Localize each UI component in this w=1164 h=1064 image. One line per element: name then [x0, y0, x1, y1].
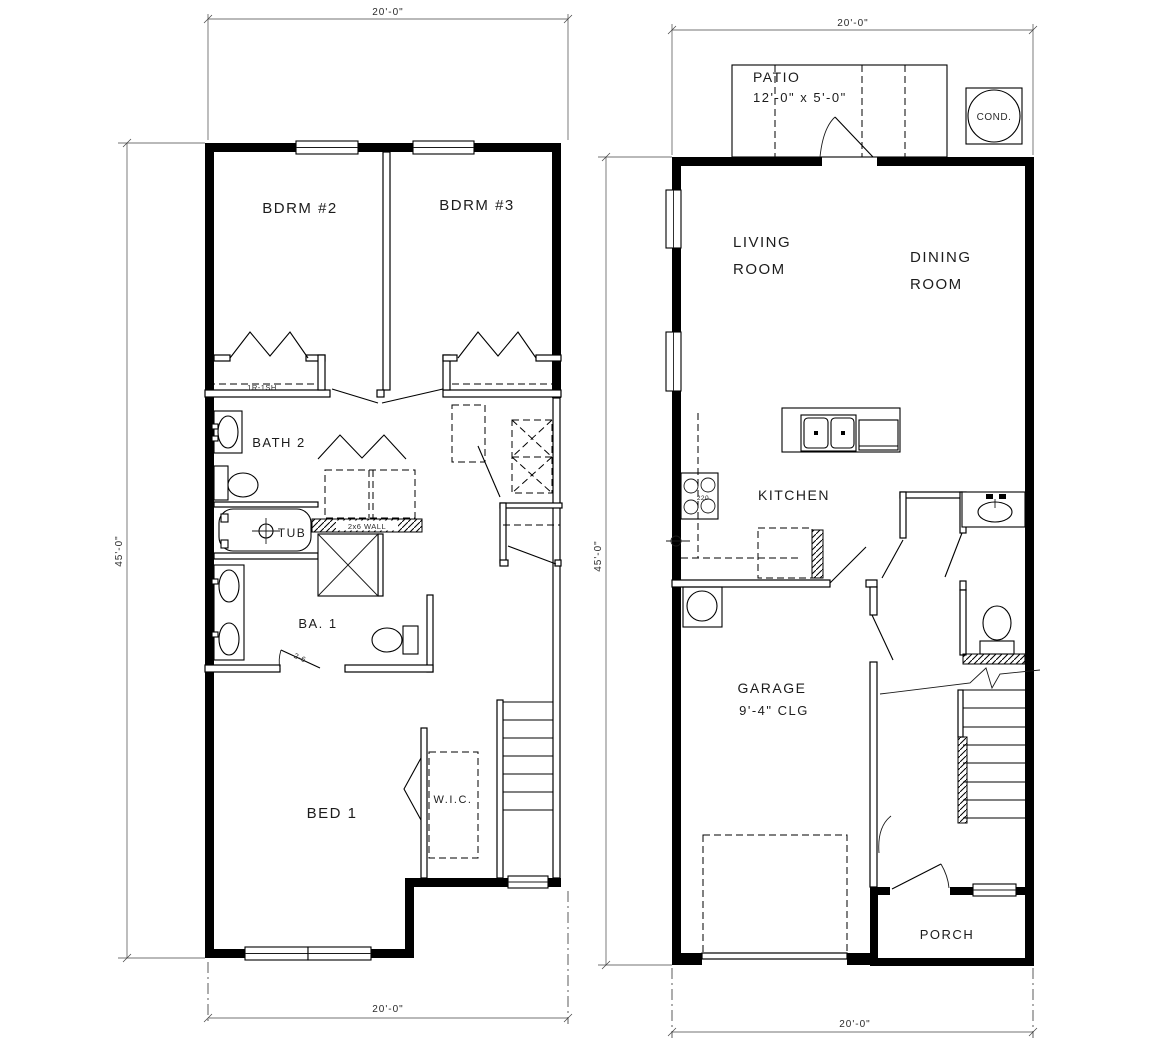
garage-door-panel	[703, 835, 847, 953]
wall-note: 2x6 WALL	[348, 522, 386, 531]
range-note: 220	[697, 495, 709, 502]
tub-label: TUB	[278, 526, 307, 540]
floor-plan-sheet: BDRM #2 BDRM #3 1R-1SH BATH 2 TUB 2x6 WA…	[0, 0, 1164, 1064]
main-floor-exterior-walls	[672, 157, 1034, 966]
dim-top-left-plan: 20'-0"	[372, 7, 403, 18]
dim-top-right-plan: 20'-0"	[837, 18, 868, 29]
window-icon	[508, 876, 548, 888]
closet-note: 1R-1SH	[247, 383, 277, 392]
floor-plan-drawing: BDRM #2 BDRM #3 1R-1SH BATH 2 TUB 2x6 WA…	[0, 0, 1164, 1064]
room-label-porch: PORCH	[920, 927, 974, 942]
toilet-icon	[228, 473, 258, 497]
door-swing-icon	[279, 389, 556, 820]
window-icon	[666, 332, 681, 391]
room-label-bath2: BATH 2	[252, 435, 306, 450]
room-label-dining1: DINING	[910, 249, 972, 266]
room-label-living1: LIVING	[733, 234, 791, 251]
room-label-dining2: ROOM	[910, 276, 963, 293]
sink-icon	[218, 416, 238, 448]
toilet-icon	[372, 628, 402, 652]
bath1-fixtures	[212, 565, 418, 660]
cond-label: COND.	[977, 112, 1012, 123]
upper-floor-plan: BDRM #2 BDRM #3 1R-1SH BATH 2 TUB 2x6 WA…	[114, 7, 572, 1024]
room-label-living2: ROOM	[733, 261, 786, 278]
garage-ceiling-note: 9'-4" CLG	[739, 703, 809, 718]
room-label-ba1: BA. 1	[298, 616, 337, 631]
pantry	[758, 528, 812, 578]
room-label-wic: W.I.C.	[434, 794, 473, 806]
dim-left-right-plan: 45'-0"	[593, 540, 604, 571]
main-floor-dimensions: 20'-0" 45'-0" 20'-0"	[593, 18, 1037, 1038]
dim-left-left-plan: 45'-0"	[114, 535, 125, 566]
window-icon	[308, 947, 371, 960]
water-heater-icon	[687, 591, 717, 621]
garage-door-icon	[702, 953, 847, 959]
powder-room-fixtures	[962, 492, 1025, 654]
room-label-bdrm2: BDRM #2	[262, 200, 338, 217]
window-icon	[413, 141, 474, 154]
room-label-kitchen: KITCHEN	[758, 487, 830, 503]
window-icon	[666, 190, 681, 248]
sink-icon	[219, 623, 239, 655]
stairs-upper	[503, 702, 553, 810]
hall-closet-and-shower	[312, 470, 422, 596]
window-icon	[973, 884, 1016, 896]
patio-label: PATIO	[753, 69, 800, 85]
window-icon	[296, 141, 358, 154]
sink-icon	[219, 570, 239, 602]
kitchen-fixtures	[666, 408, 900, 627]
main-floor-plan: PATIO 12'-0" x 5'-0" COND.	[593, 18, 1040, 1038]
door-swing-icon	[830, 533, 962, 889]
room-label-bed1: BED 1	[307, 805, 358, 822]
door-swing-icon	[835, 117, 873, 157]
door-size-note: 2-6	[293, 651, 308, 664]
dim-bottom-left-plan: 20'-0"	[372, 1004, 403, 1015]
dim-bottom-right-plan: 20'-0"	[839, 1019, 870, 1030]
room-label-garage: GARAGE	[738, 680, 807, 696]
room-label-bdrm3: BDRM #3	[439, 197, 515, 214]
patio-size-label: 12'-0" x 5'-0"	[753, 90, 847, 105]
window-icon	[245, 947, 308, 960]
toilet-icon	[983, 606, 1011, 640]
